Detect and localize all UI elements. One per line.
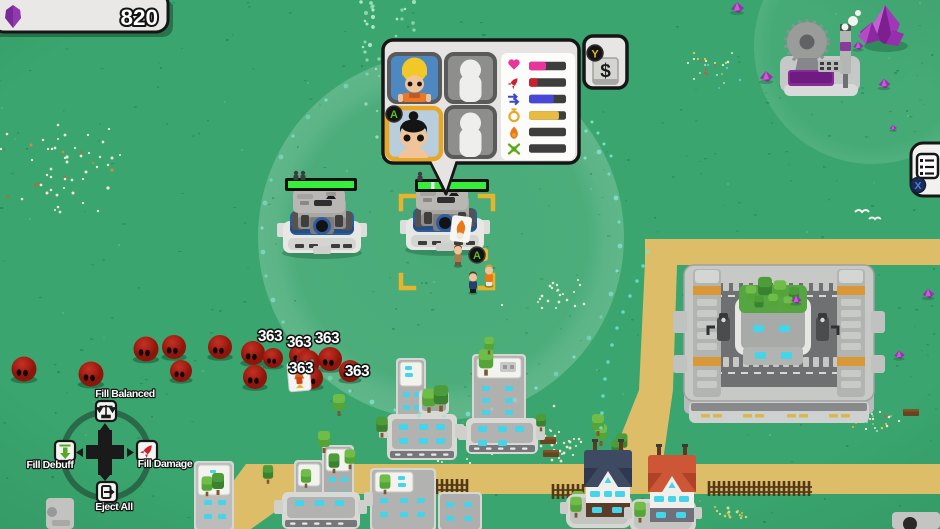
svg-text:Fill Damage: Fill Damage — [138, 458, 193, 470]
svg-text:A: A — [390, 109, 398, 121]
svg-text:363: 363 — [315, 330, 340, 347]
svg-text:363: 363 — [289, 360, 314, 377]
svg-text:A: A — [473, 250, 481, 262]
svg-text:Eject All: Eject All — [95, 501, 133, 513]
svg-text:Y: Y — [591, 49, 599, 61]
svg-text:$: $ — [600, 61, 611, 82]
svg-text:820: 820 — [120, 5, 158, 30]
svg-text:363: 363 — [345, 363, 370, 380]
svg-text:Fill Balanced: Fill Balanced — [95, 388, 155, 400]
svg-text:363: 363 — [287, 334, 312, 351]
svg-text:Fill Debuff: Fill Debuff — [27, 459, 75, 471]
svg-text:363: 363 — [258, 328, 283, 345]
svg-text:X: X — [914, 180, 921, 192]
